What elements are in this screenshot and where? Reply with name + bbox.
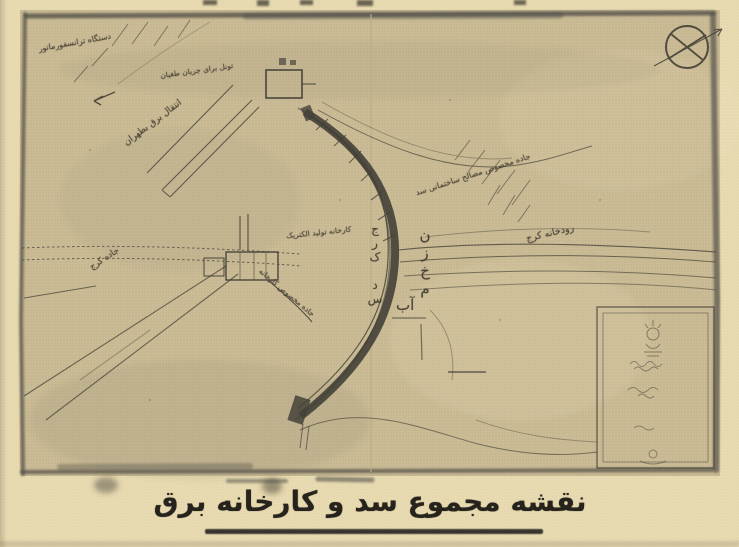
map-caption: نقشه مجموع سد و کارخانه برق [150,485,590,518]
page-left-edge-shade [0,0,7,547]
caption-underline [205,529,543,534]
label-reservoir: مخزن [416,186,434,298]
page-bottom-shade [0,541,739,547]
label-reservoir-water: آب [396,296,414,314]
label-dam: سد کرج [368,216,382,306]
scanned-newspaper-map-page: دستگاه ترانسفورماتور انتقال برق بطهران ت… [0,0,739,547]
